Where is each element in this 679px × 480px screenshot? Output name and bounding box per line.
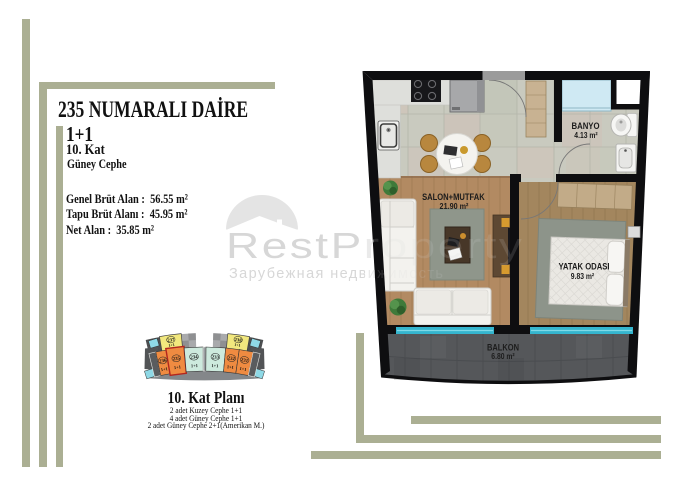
svg-text:233: 233 [212, 355, 220, 360]
svg-text:21.90 m²: 21.90 m² [440, 201, 469, 211]
svg-text:1+1: 1+1 [227, 364, 234, 370]
svg-text:1+1: 1+1 [234, 342, 241, 348]
svg-text:232: 232 [227, 356, 235, 362]
svg-text:235: 235 [173, 356, 181, 362]
svg-text:1+1: 1+1 [168, 342, 175, 348]
svg-text:4.13 m²: 4.13 m² [574, 130, 598, 140]
svg-text:1+1: 1+1 [211, 363, 218, 368]
svg-text:234: 234 [190, 355, 198, 360]
svg-text:1+1: 1+1 [191, 363, 198, 368]
svg-text:1+1: 1+1 [174, 364, 181, 370]
svg-text:6.80 m²: 6.80 m² [491, 351, 515, 361]
